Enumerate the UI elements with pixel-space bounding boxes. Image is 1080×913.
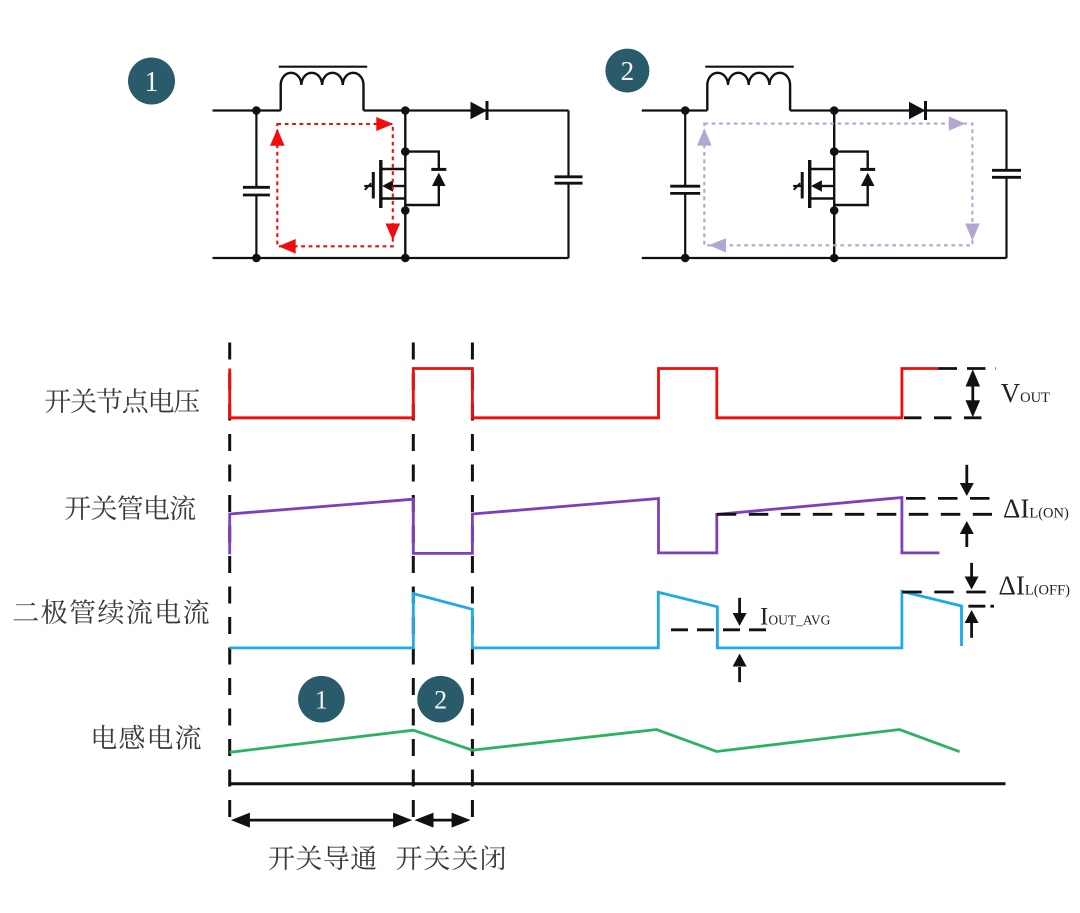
svg-text:2: 2: [621, 56, 635, 86]
svg-text:ΔIL(OFF): ΔIL(OFF): [999, 571, 1071, 601]
svg-text:IOUT_AVG: IOUT_AVG: [760, 604, 831, 631]
svg-text:2: 2: [434, 685, 447, 714]
svg-text:1: 1: [145, 67, 159, 98]
svg-text:ΔIL(ON): ΔIL(ON): [1003, 494, 1069, 524]
svg-text:VOUT: VOUT: [1001, 378, 1050, 408]
svg-text:1: 1: [315, 685, 328, 714]
